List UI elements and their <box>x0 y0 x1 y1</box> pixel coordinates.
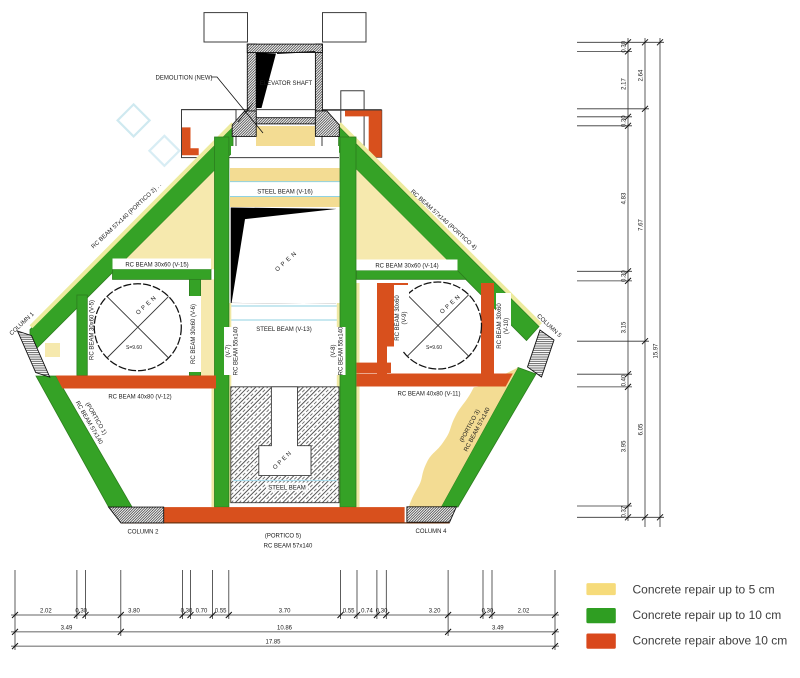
svg-text:RC BEAM 30x60: RC BEAM 30x60 <box>395 295 401 341</box>
svg-text:0.30: 0.30 <box>622 40 628 52</box>
svg-text:COLUMN 2: COLUMN 2 <box>127 530 159 536</box>
svg-text:0.70: 0.70 <box>196 609 208 615</box>
svg-text:DEMOLITION (NEW): DEMOLITION (NEW) <box>156 76 213 82</box>
svg-text:4.83: 4.83 <box>622 192 628 204</box>
svg-text:RC BEAM 55x140: RC BEAM 55x140 <box>339 326 345 375</box>
svg-text:RC BEAM 30x60 (V-5): RC BEAM 30x60 (V-5) <box>90 300 96 360</box>
svg-text:0.40: 0.40 <box>622 374 628 386</box>
svg-text:Concrete repair up to 5 cm: Concrete repair up to 5 cm <box>633 583 775 597</box>
svg-text:(V-10): (V-10) <box>504 318 510 334</box>
svg-text:0.37: 0.37 <box>622 505 628 517</box>
svg-text:(PORTICO 5): (PORTICO 5) <box>265 534 301 540</box>
svg-text:0.74: 0.74 <box>361 609 373 615</box>
svg-text:7.67: 7.67 <box>639 219 645 231</box>
svg-text:STEEL BEAM: STEEL BEAM <box>268 486 305 492</box>
svg-text:2.02: 2.02 <box>518 609 530 615</box>
svg-text:S=9.60: S=9.60 <box>426 345 442 351</box>
svg-text:3.49: 3.49 <box>492 625 504 631</box>
svg-text:0.55: 0.55 <box>343 609 355 615</box>
svg-text:0.30: 0.30 <box>181 609 193 615</box>
svg-text:STEEL BEAM (V-13): STEEL BEAM (V-13) <box>256 327 311 333</box>
svg-text:ELEVATOR SHAFT: ELEVATOR SHAFT <box>260 81 313 87</box>
svg-text:6.05: 6.05 <box>639 423 645 435</box>
svg-text:RC BEAM 30x60 (V-14): RC BEAM 30x60 (V-14) <box>375 264 438 270</box>
svg-text:2.17: 2.17 <box>622 78 628 90</box>
svg-text:0.30: 0.30 <box>376 609 388 615</box>
svg-text:3.15: 3.15 <box>622 321 628 333</box>
svg-text:RC BEAM 30x60 (V-15): RC BEAM 30x60 (V-15) <box>125 263 188 269</box>
svg-text:0.30: 0.30 <box>482 609 494 615</box>
svg-text:3.20: 3.20 <box>429 609 441 615</box>
svg-text:10.86: 10.86 <box>277 625 293 631</box>
svg-text:RC BEAM 30x60 (V-6): RC BEAM 30x60 (V-6) <box>191 304 197 364</box>
svg-text:(V-8): (V-8) <box>331 344 337 357</box>
svg-text:(V-9): (V-9) <box>402 311 408 324</box>
svg-text:STEEL BEAM (V-16): STEEL BEAM (V-16) <box>257 190 312 196</box>
svg-text:3.95: 3.95 <box>622 440 628 452</box>
svg-text:2.64: 2.64 <box>639 69 645 81</box>
svg-text:(V-7): (V-7) <box>226 344 232 357</box>
svg-text:RC BEAM 30x60: RC BEAM 30x60 <box>497 303 503 349</box>
svg-text:RC BEAM 40x80 (V-12): RC BEAM 40x80 (V-12) <box>108 395 171 401</box>
svg-text:0.30: 0.30 <box>75 609 87 615</box>
svg-text:15.97: 15.97 <box>654 343 660 359</box>
svg-text:3.80: 3.80 <box>128 609 140 615</box>
svg-text:S=9.60: S=9.60 <box>126 345 142 351</box>
svg-text:0.55: 0.55 <box>215 609 227 615</box>
svg-text:17.85: 17.85 <box>265 640 281 646</box>
svg-text:COLUMN 4: COLUMN 4 <box>415 529 447 535</box>
svg-text:0.30: 0.30 <box>622 115 628 127</box>
svg-text:RC BEAM 57x140: RC BEAM 57x140 <box>264 544 313 550</box>
svg-text:Concrete repair up to 10 cm: Concrete repair up to 10 cm <box>633 608 782 622</box>
svg-text:3.70: 3.70 <box>279 609 291 615</box>
svg-text:RC BEAM 55x140: RC BEAM 55x140 <box>234 326 240 375</box>
svg-text:2.02: 2.02 <box>40 609 52 615</box>
svg-text:Concrete repair above 10 cm: Concrete repair above 10 cm <box>633 634 788 648</box>
svg-text:3.49: 3.49 <box>61 625 73 631</box>
svg-text:RC BEAM 40x80 (V-11): RC BEAM 40x80 (V-11) <box>398 392 461 398</box>
svg-text:0.30: 0.30 <box>622 270 628 282</box>
